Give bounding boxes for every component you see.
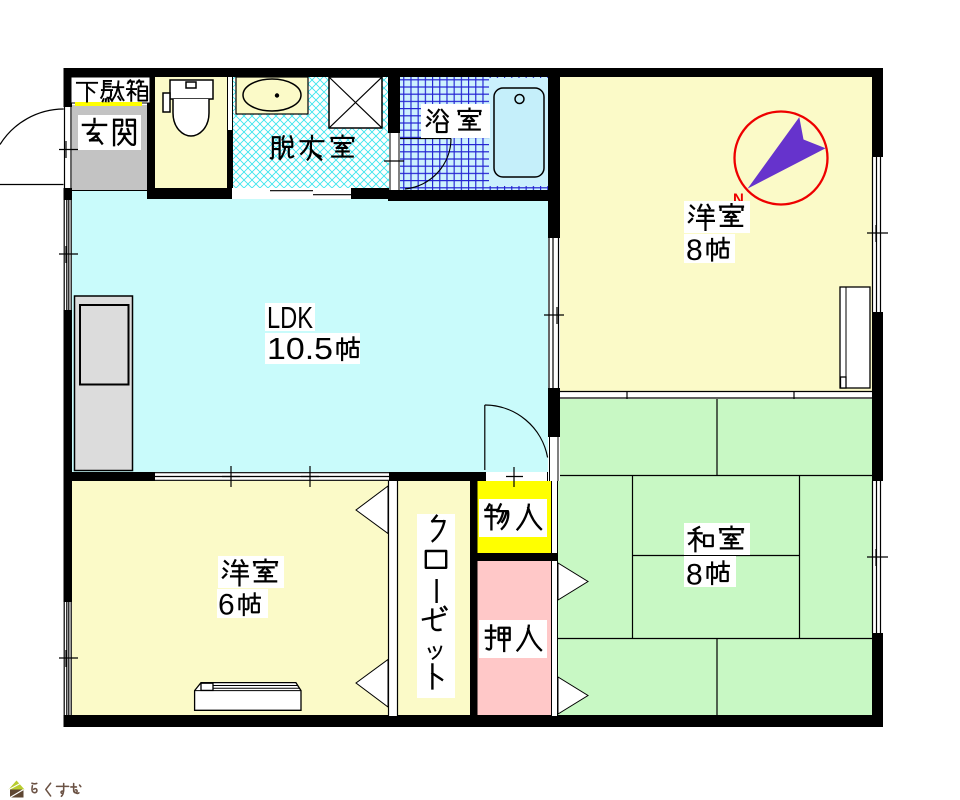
svg-text:6: 6 xyxy=(218,589,235,622)
svg-text:8: 8 xyxy=(686,234,703,267)
svg-text:LDK: LDK xyxy=(267,300,313,335)
svg-text:8: 8 xyxy=(686,559,703,592)
svg-text:10.5: 10.5 xyxy=(267,331,333,366)
